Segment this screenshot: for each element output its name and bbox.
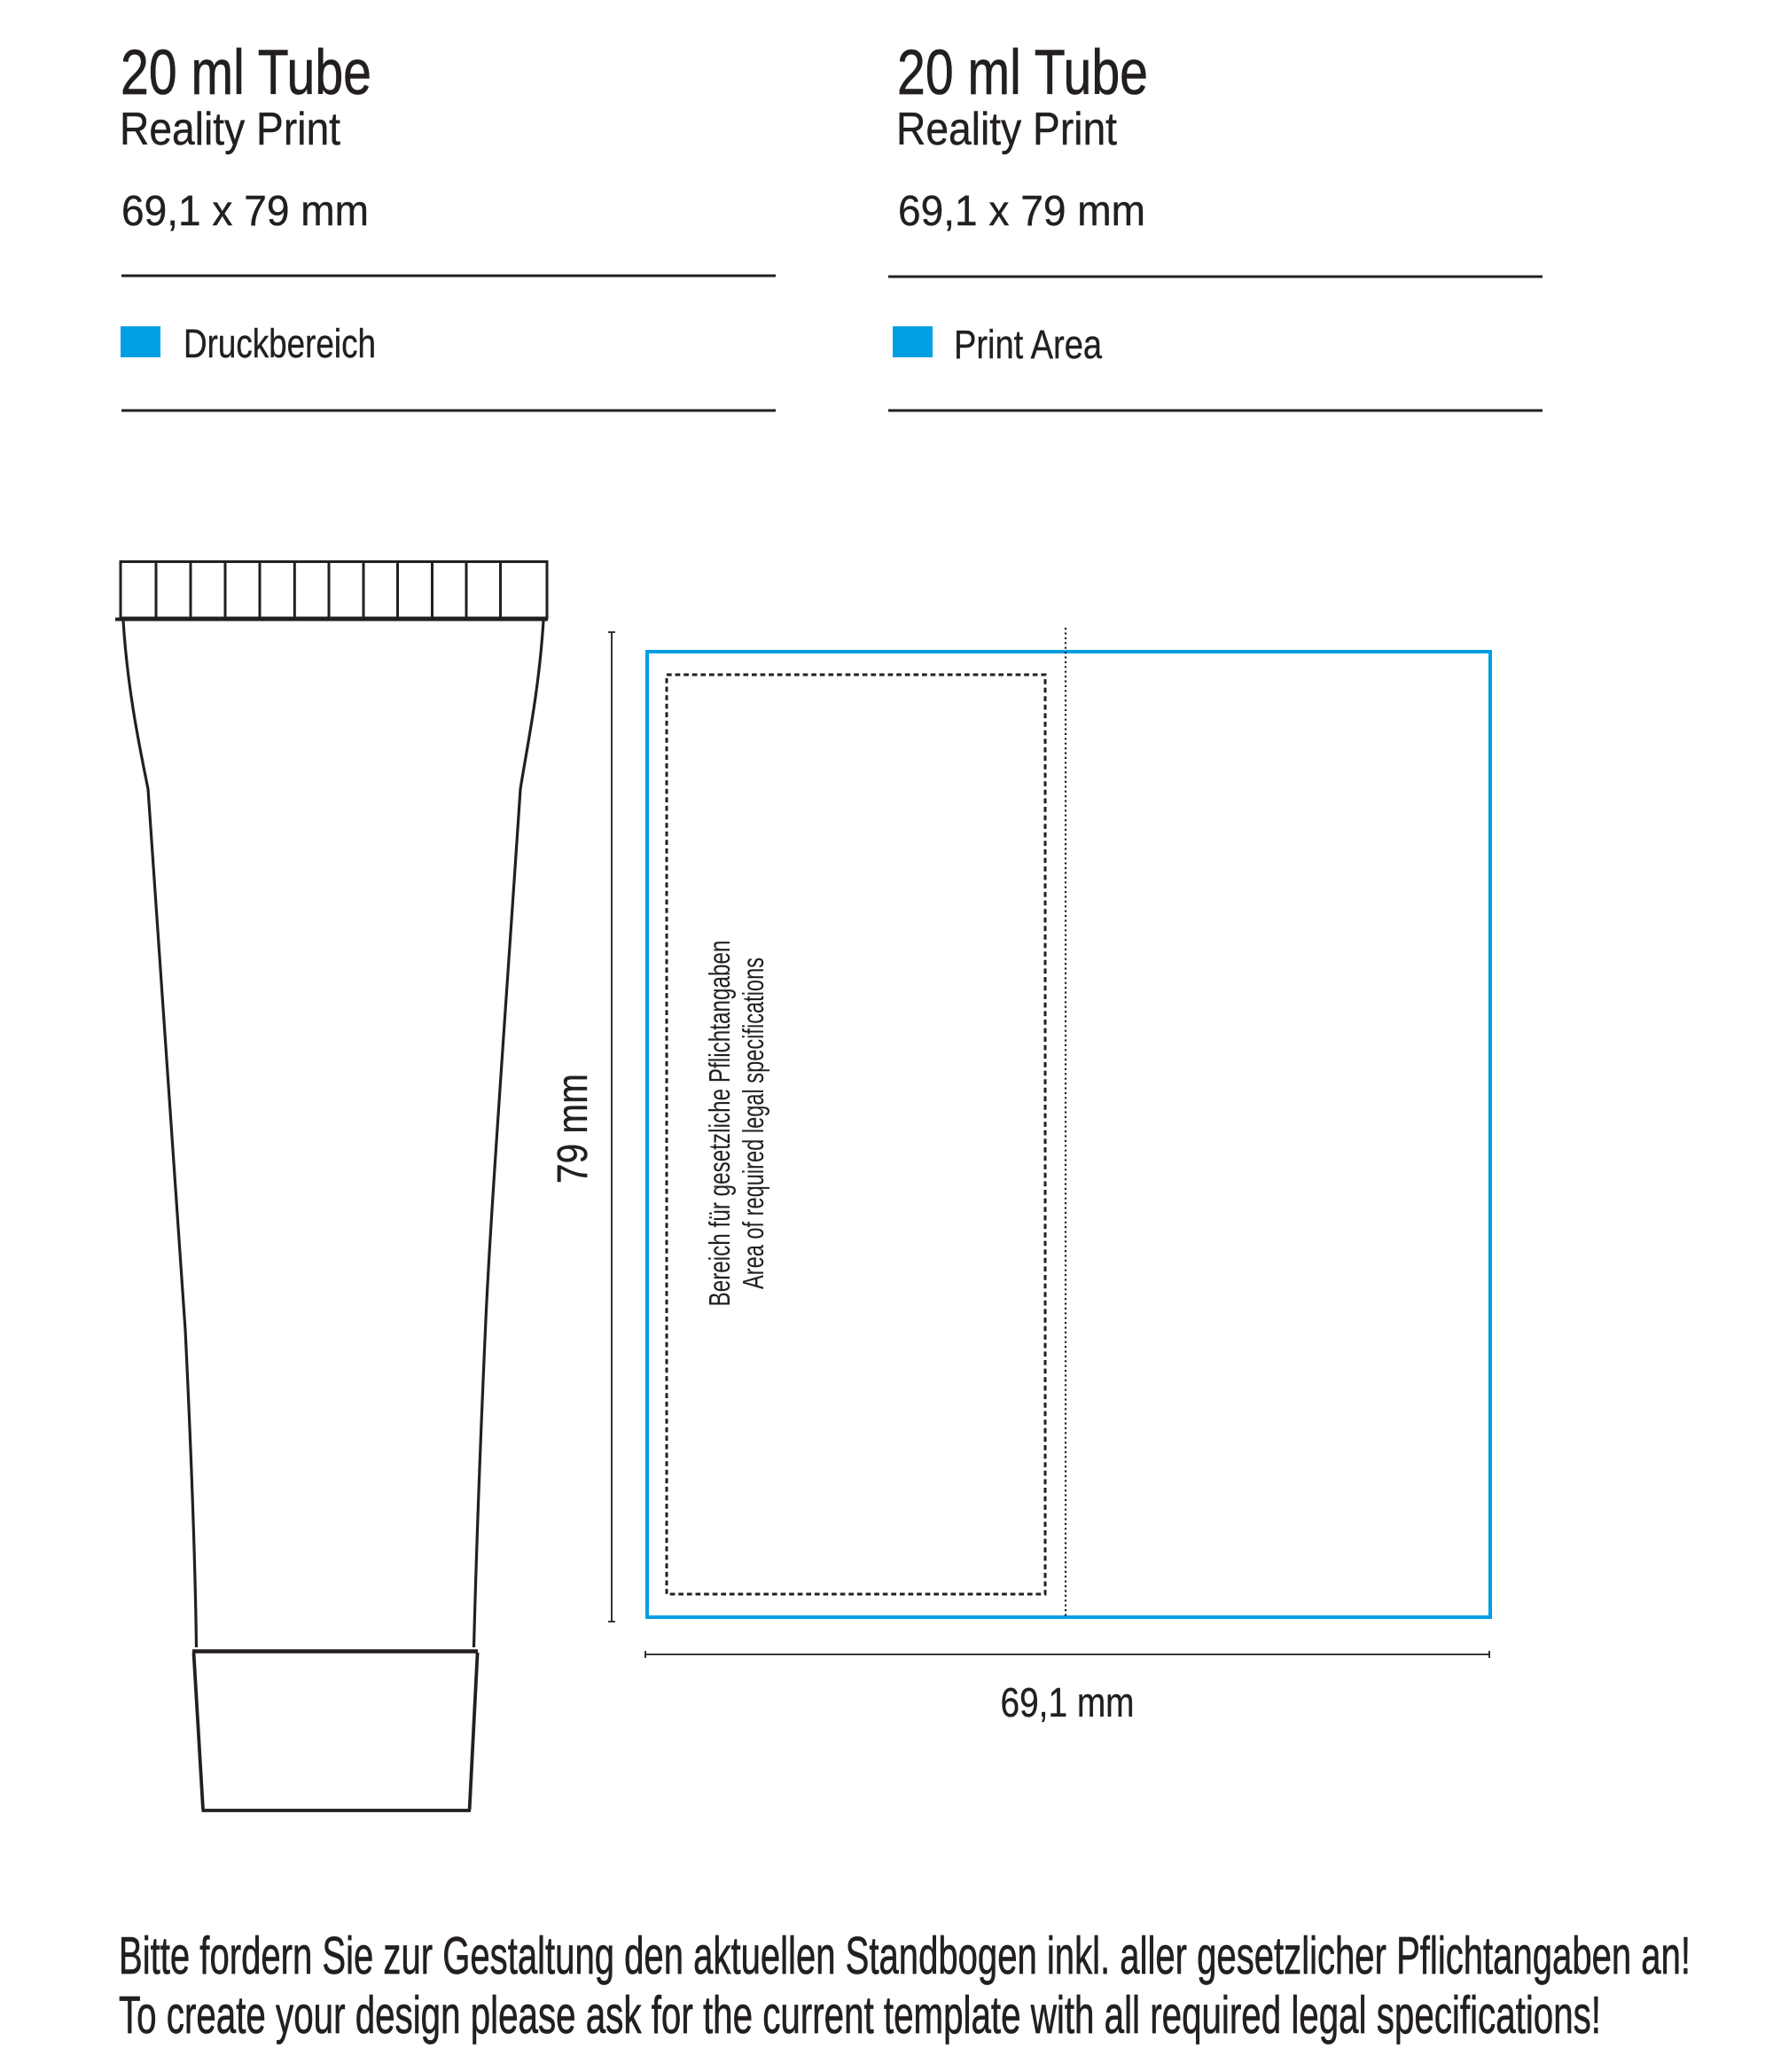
svg-text:69,1 x 79 mm: 69,1 x 79 mm — [121, 188, 369, 235]
svg-text:Bitte fordern Sie zur Gestaltu: Bitte fordern Sie zur Gestaltung den akt… — [119, 1927, 1691, 1985]
svg-text:To create your design please a: To create your design please ask for the… — [119, 1986, 1601, 2045]
svg-text:Druckbereich: Druckbereich — [184, 321, 376, 366]
svg-text:69,1 mm: 69,1 mm — [1001, 1679, 1135, 1725]
svg-text:Reality Print: Reality Print — [120, 104, 340, 155]
svg-text:69,1 x 79 mm: 69,1 x 79 mm — [898, 188, 1145, 235]
svg-text:79 mm: 79 mm — [550, 1074, 597, 1184]
svg-text:Bereich für gesetzliche Pflich: Bereich für gesetzliche Pflichtangaben — [703, 941, 736, 1307]
svg-text:Reality Print: Reality Print — [896, 104, 1117, 155]
svg-text:20 ml Tube: 20 ml Tube — [897, 37, 1148, 108]
svg-text:Area of required legal specifi: Area of required legal specifications — [737, 958, 769, 1289]
svg-text:Print Area: Print Area — [954, 322, 1103, 367]
svg-text:20 ml Tube: 20 ml Tube — [121, 37, 371, 108]
